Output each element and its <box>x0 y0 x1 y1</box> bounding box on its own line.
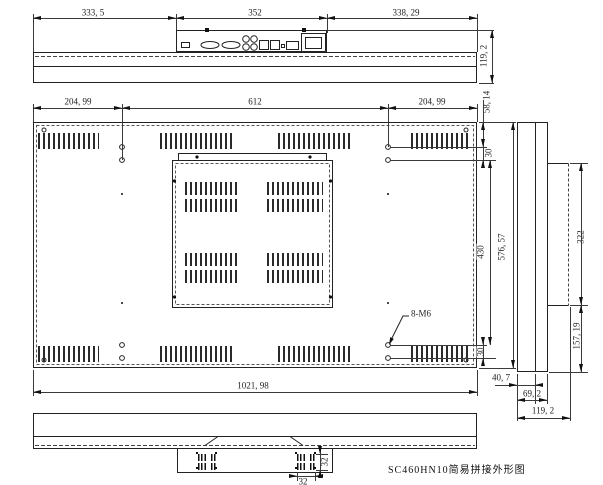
dimension-arrowhead <box>579 163 583 171</box>
dimension-arrowhead <box>168 16 176 20</box>
dimension-arrowhead <box>579 364 583 372</box>
dimension-arrowhead <box>488 160 492 168</box>
plate-vent-slots <box>267 182 323 195</box>
dim-label-top-width-center: 352 <box>247 9 263 18</box>
engineering-drawing-sheet: 333, 5 352 338, 29 119, 2 204, 99 612 20… <box>0 0 603 485</box>
dim-label-hole-offset-right: 204, 99 <box>418 98 447 107</box>
vent-slots <box>160 133 232 149</box>
plate-vent-slots <box>185 182 240 195</box>
plate-vent-slots <box>185 270 240 283</box>
dimension-arrowhead <box>327 16 335 20</box>
dimension-arrowhead <box>511 122 515 130</box>
dimension-arrowhead <box>481 358 485 366</box>
screw <box>314 467 316 469</box>
screw <box>329 179 332 182</box>
dimension-line <box>513 122 514 368</box>
dimension-line <box>33 14 34 52</box>
vent-slots <box>411 346 471 362</box>
screw <box>215 467 217 469</box>
dimension-line <box>483 100 484 167</box>
screw <box>308 155 311 158</box>
connector-round-3 <box>243 44 250 51</box>
dimension-arrowhead <box>388 106 396 110</box>
screw <box>173 179 176 182</box>
dimension-arrowhead <box>517 398 525 402</box>
screw <box>302 28 306 32</box>
dimension-line <box>479 368 516 369</box>
plate-vent-slots <box>185 253 240 266</box>
fan-grille-gap <box>305 454 308 470</box>
dimension-arrowhead <box>469 390 477 394</box>
dimension-arrowhead <box>380 106 388 110</box>
screw <box>173 295 176 298</box>
dimension-line <box>390 147 487 148</box>
dimension-arrowhead <box>176 16 184 20</box>
connector-square-1 <box>260 41 269 50</box>
dimension-line <box>390 345 487 346</box>
dimension-line <box>327 30 494 31</box>
dimension-line <box>33 18 477 19</box>
dimension-line <box>490 160 491 345</box>
dim-label-top-depth: 119, 2 <box>480 44 489 68</box>
connector-dsub-2 <box>222 42 240 49</box>
dimension-arrowhead <box>481 337 485 345</box>
m6-mount-hole <box>120 356 125 361</box>
dimension-arrowhead <box>562 416 570 420</box>
vent-slots <box>160 346 232 362</box>
dim-label-hole-offset-left: 204, 99 <box>64 98 93 107</box>
dimension-line <box>477 370 478 396</box>
screw <box>196 452 198 454</box>
m6-mount-hole <box>120 343 125 348</box>
dimension-line <box>316 454 328 455</box>
connector-dsub-1 <box>201 42 219 49</box>
leader-arrowhead <box>389 337 394 345</box>
dimension-arrowhead <box>579 305 583 313</box>
dim-label-back-height: 576, 57 <box>498 233 507 262</box>
dimension-line <box>122 104 123 160</box>
recess-notch <box>205 437 218 446</box>
plate-vent-slots <box>267 253 323 266</box>
dimension-line <box>297 472 298 481</box>
pilot-hole <box>121 302 123 304</box>
vent-slots <box>38 346 99 362</box>
dim-label-top-width-right: 338, 29 <box>392 9 421 18</box>
dimension-arrowhead <box>517 416 525 420</box>
dimension-line <box>33 108 477 109</box>
dimension-line <box>549 372 588 373</box>
connector-square-3 <box>287 42 299 50</box>
dimension-arrowhead <box>469 106 477 110</box>
screw <box>329 295 332 298</box>
dimension-line <box>535 374 536 404</box>
connector-power <box>182 43 190 48</box>
dim-label-side-depth-total: 119, 2 <box>531 407 555 416</box>
dimension-line <box>479 83 494 84</box>
dimension-arrowhead <box>33 16 41 20</box>
dimension-arrowhead <box>481 160 485 168</box>
screw <box>215 452 217 454</box>
dimension-line <box>33 392 477 393</box>
plate-vent-slots <box>267 199 323 212</box>
screw <box>196 467 198 469</box>
dim-label-hole-pitch-top: 30 <box>485 148 494 159</box>
vent-slots <box>278 133 352 149</box>
corner-hole <box>464 128 468 132</box>
dimension-arrowhead <box>579 297 583 305</box>
dimension-line <box>477 14 478 52</box>
dim-label-side-depth-panel: 40, 7 <box>491 374 511 383</box>
dimension-arrowhead <box>511 360 515 368</box>
recess-notch <box>290 437 303 446</box>
plate-vent-slots <box>267 270 323 283</box>
corner-hole <box>42 128 46 132</box>
drawing-title: SC460HN10简易拼接外形图 <box>388 461 526 476</box>
plate-vent-slots <box>185 199 240 212</box>
dimension-arrowhead <box>488 337 492 345</box>
dimension-arrowhead <box>33 390 41 394</box>
screw <box>195 155 198 158</box>
dim-label-back-width: 1021, 98 <box>236 382 270 391</box>
dimension-line <box>388 104 389 147</box>
connector-square-2 <box>271 41 280 50</box>
dimension-arrowhead <box>289 474 297 478</box>
dimension-arrowhead <box>490 30 494 38</box>
dimension-arrowhead <box>315 474 323 478</box>
thread-leader-line <box>390 316 409 342</box>
dimension-arrowhead <box>490 75 494 83</box>
connector-round-2 <box>251 36 258 43</box>
pilot-hole <box>121 193 123 195</box>
connector-small <box>282 45 285 48</box>
connector-round-1 <box>243 36 250 43</box>
screw <box>295 452 297 454</box>
connector-round-4 <box>251 44 258 51</box>
dimension-line <box>570 307 571 421</box>
thread-note-label: 8-M6 <box>410 310 432 319</box>
fan-grille-gap <box>206 454 209 470</box>
dim-label-hole-pitch-bottom: 30 <box>477 347 486 358</box>
side-view-outline <box>518 123 569 372</box>
top-view-outline <box>34 28 477 83</box>
dim-label-hole-span: 612 <box>247 98 263 107</box>
dimension-line <box>547 374 548 404</box>
dimension-arrowhead <box>509 383 517 387</box>
dim-label-fan-height: 32 <box>321 457 330 468</box>
dim-label-top-width-left: 333, 5 <box>81 9 106 18</box>
dimension-arrowhead <box>481 139 485 147</box>
dimension-arrowhead <box>319 16 327 20</box>
dim-label-fan-width: 32 <box>298 478 309 485</box>
dimension-arrowhead <box>469 16 477 20</box>
dimension-arrowhead <box>114 106 122 110</box>
screw <box>295 467 297 469</box>
pilot-hole <box>387 302 389 304</box>
screw <box>205 28 209 32</box>
dimension-arrowhead <box>481 122 485 130</box>
dimension-line <box>477 104 478 122</box>
dimension-arrowhead <box>122 106 130 110</box>
dimension-arrowhead <box>535 383 543 387</box>
vent-slots <box>38 133 99 149</box>
vent-slots <box>278 346 352 362</box>
dimension-arrowhead <box>33 106 41 110</box>
dimension-arrowhead <box>318 446 322 454</box>
dim-label-hole-span-vert: 430 <box>477 244 486 260</box>
pilot-hole <box>387 193 389 195</box>
dimension-arrowhead <box>539 398 547 402</box>
dimension-line <box>581 163 582 372</box>
